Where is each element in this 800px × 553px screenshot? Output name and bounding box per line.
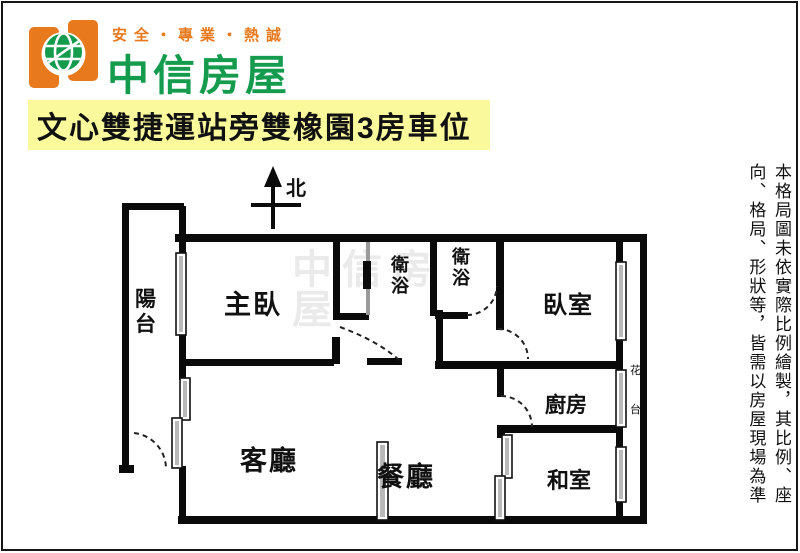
window xyxy=(495,476,505,520)
room-label-kitchen: 廚房 xyxy=(545,389,587,419)
window xyxy=(616,370,626,427)
room-label-living-room: 客廳 xyxy=(240,439,298,478)
north-label: 北 xyxy=(286,172,306,201)
room-label-balcony: 陽台 xyxy=(135,288,157,338)
window xyxy=(172,418,182,468)
room-label-master-bedroom: 主臥 xyxy=(224,283,282,322)
room-label-bathroom2: 衛浴 xyxy=(452,247,471,289)
window xyxy=(180,378,190,420)
room-label-dining-room: 餐廳 xyxy=(377,455,435,494)
room-label-tatami-room: 和室 xyxy=(547,463,591,495)
flyer-page: 安全・專業・熱誠 中信房屋 文心雙捷運站旁雙橡園3房車位 本格局圖未依實際比例繪… xyxy=(0,0,800,553)
room-label-bedroom: 臥室 xyxy=(543,285,593,320)
window xyxy=(616,262,626,340)
window xyxy=(616,447,626,502)
window xyxy=(176,253,186,335)
window xyxy=(502,435,512,478)
room-label-bathroom1: 衛浴 xyxy=(391,255,410,297)
room-label-flower-bed: 花台 xyxy=(630,352,642,429)
